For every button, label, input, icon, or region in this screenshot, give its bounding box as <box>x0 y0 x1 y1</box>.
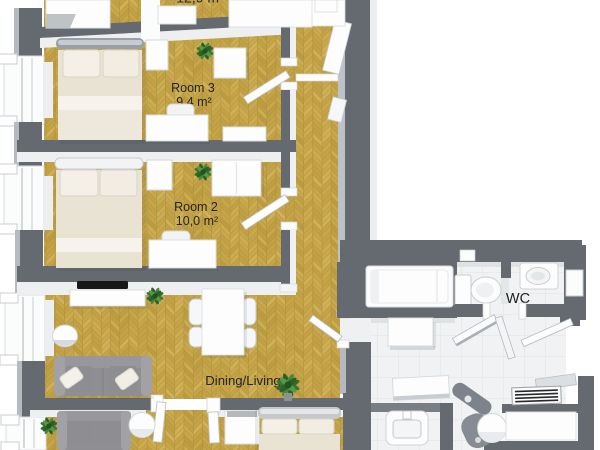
svg-text:10,0 m²: 10,0 m² <box>176 214 218 228</box>
svg-text:12,9 m²: 12,9 m² <box>176 0 224 6</box>
svg-text:Room 2: Room 2 <box>174 200 218 214</box>
svg-text:Dining/Living: Dining/Living <box>205 373 281 388</box>
svg-text:Room 3: Room 3 <box>171 81 215 95</box>
